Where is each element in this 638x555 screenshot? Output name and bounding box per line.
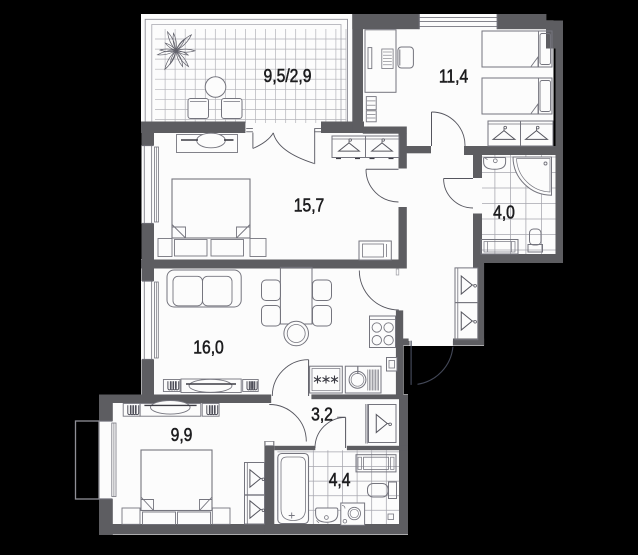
svg-text:4,4: 4,4: [329, 469, 351, 491]
svg-text:15,7: 15,7: [294, 194, 325, 216]
svg-text:16,0: 16,0: [193, 336, 224, 358]
svg-text:9,9: 9,9: [171, 424, 193, 446]
svg-text:4,0: 4,0: [493, 201, 515, 223]
svg-text:3,2: 3,2: [311, 403, 333, 425]
svg-text:9,5/2,9: 9,5/2,9: [264, 65, 312, 87]
svg-text:11,4: 11,4: [439, 65, 469, 87]
